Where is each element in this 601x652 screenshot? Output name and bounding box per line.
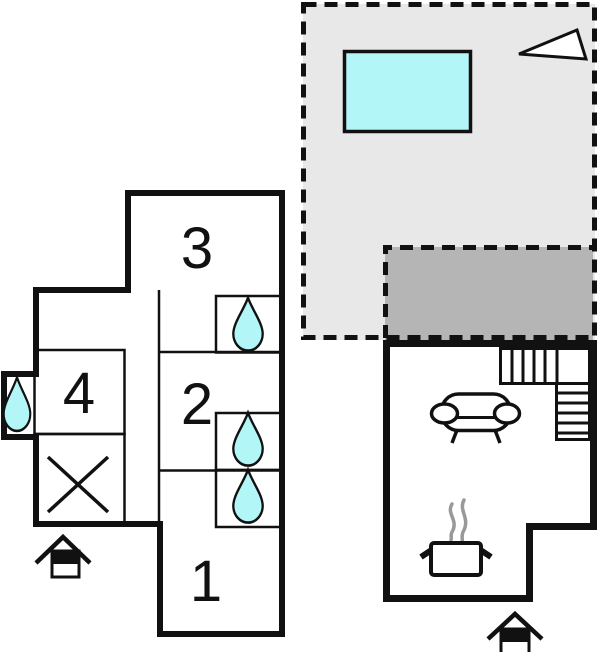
room-4-label: 4 bbox=[51, 365, 107, 423]
room-2-label: 2 bbox=[169, 376, 225, 434]
entrance-house-icon bbox=[36, 537, 90, 577]
entrance-house-icon bbox=[488, 614, 542, 652]
room-1-label: 1 bbox=[178, 553, 234, 611]
pool-icon bbox=[345, 52, 471, 132]
patio-area bbox=[385, 247, 593, 340]
room-3-label: 3 bbox=[169, 220, 225, 278]
floor-plan-canvas bbox=[0, 0, 601, 652]
floor-plan: 3 4 2 1 bbox=[0, 0, 601, 652]
